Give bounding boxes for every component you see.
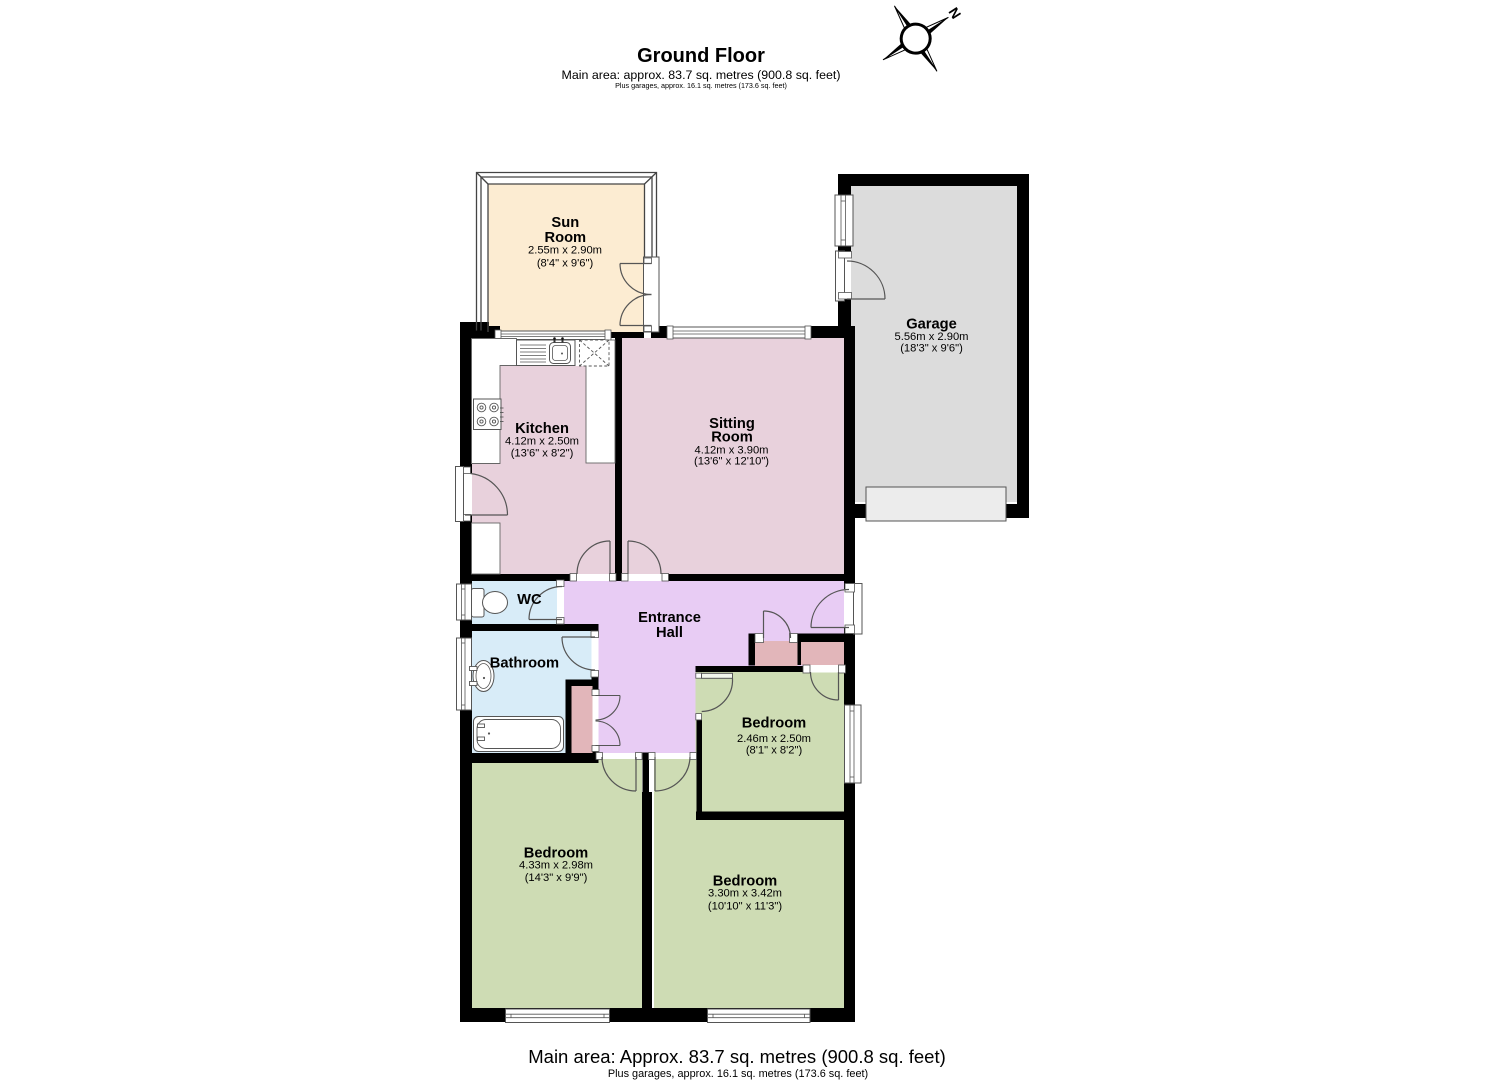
svg-text:Bathroom: Bathroom bbox=[490, 656, 559, 672]
svg-text:(13'6" x 12'10"): (13'6" x 12'10") bbox=[694, 456, 769, 468]
svg-text:(10'10" x 11'3"): (10'10" x 11'3") bbox=[708, 900, 782, 912]
svg-text:Main area: approx. 83.7 sq. me: Main area: approx. 83.7 sq. metres (900.… bbox=[562, 68, 841, 82]
svg-text:(13'6" x 8'2"): (13'6" x 8'2") bbox=[511, 447, 574, 459]
svg-text:5.56m x 2.90m: 5.56m x 2.90m bbox=[895, 331, 969, 343]
svg-text:Hall: Hall bbox=[656, 625, 683, 641]
svg-text:2.55m x 2.90m: 2.55m x 2.90m bbox=[528, 245, 602, 257]
svg-text:2.46m x 2.50m: 2.46m x 2.50m bbox=[737, 733, 811, 745]
svg-text:Plus garages, approx. 16.1 sq.: Plus garages, approx. 16.1 sq. metres (1… bbox=[608, 1068, 868, 1080]
svg-text:3.30m x 3.42m: 3.30m x 3.42m bbox=[708, 888, 782, 900]
svg-text:(14'3" x 9'9"): (14'3" x 9'9") bbox=[525, 872, 588, 884]
svg-text:Entrance: Entrance bbox=[638, 610, 701, 626]
svg-text:Ground Floor: Ground Floor bbox=[637, 45, 765, 67]
svg-text:Room: Room bbox=[544, 230, 586, 246]
svg-text:4.12m x 2.50m: 4.12m x 2.50m bbox=[505, 436, 579, 448]
svg-text:(18'3" x 9'6"): (18'3" x 9'6") bbox=[900, 342, 963, 354]
svg-text:Plus garages, approx. 16.1 sq.: Plus garages, approx. 16.1 sq. metres (1… bbox=[615, 81, 787, 90]
svg-text:Garage: Garage bbox=[906, 317, 957, 333]
svg-text:Sun: Sun bbox=[551, 215, 579, 231]
svg-text:(8'1" x 8'2"): (8'1" x 8'2") bbox=[746, 745, 803, 757]
svg-text:Bedroom: Bedroom bbox=[742, 716, 806, 732]
svg-text:4.33m x 2.98m: 4.33m x 2.98m bbox=[519, 859, 593, 871]
svg-text:WC: WC bbox=[517, 592, 542, 608]
svg-text:Kitchen: Kitchen bbox=[515, 421, 569, 437]
svg-text:Main area: Approx. 83.7 sq. me: Main area: Approx. 83.7 sq. metres (900.… bbox=[528, 1046, 946, 1067]
svg-text:Room: Room bbox=[711, 429, 753, 445]
svg-text:(8'4" x 9'6"): (8'4" x 9'6") bbox=[537, 257, 594, 269]
